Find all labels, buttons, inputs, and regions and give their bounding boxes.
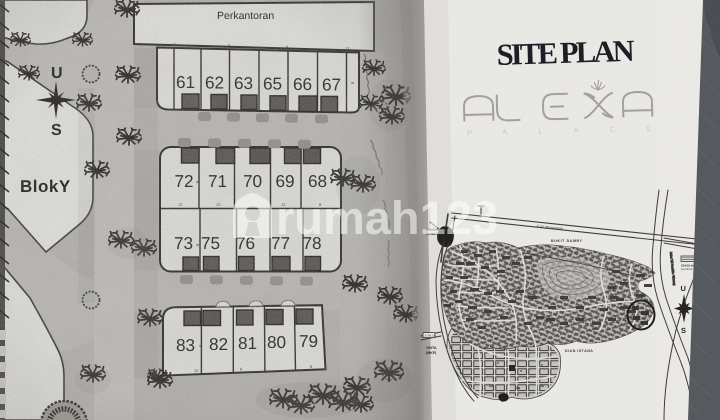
svg-text:rumah123: rumah123 [276,191,498,244]
